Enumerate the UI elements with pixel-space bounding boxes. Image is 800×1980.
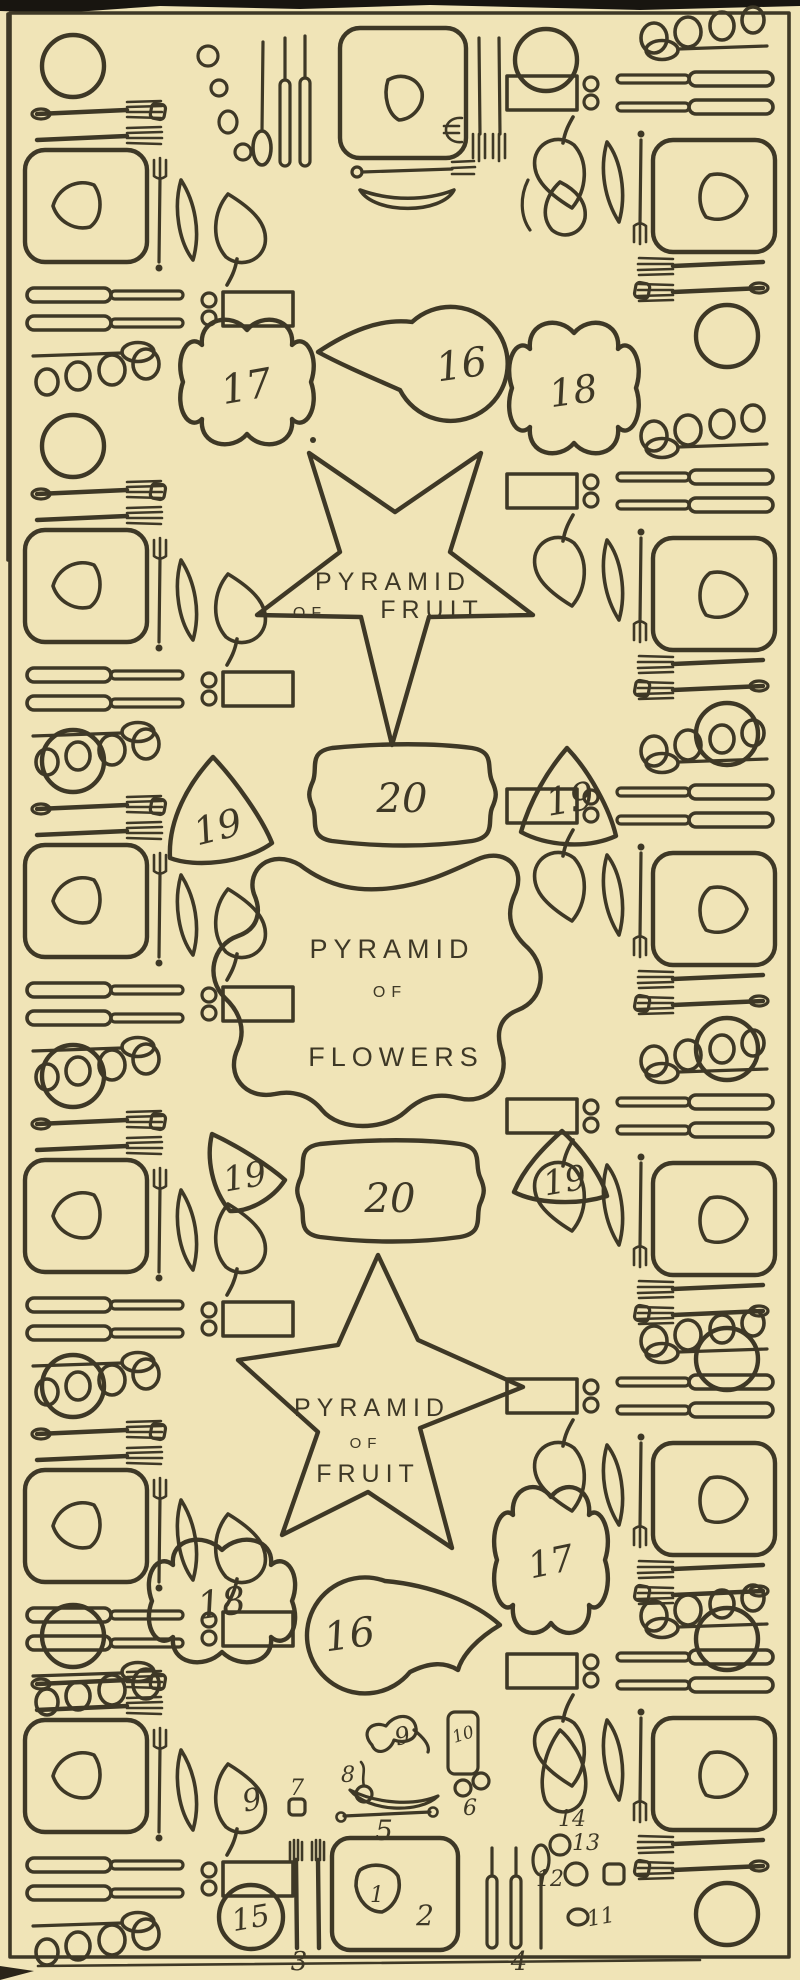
ink-dot <box>310 437 316 443</box>
centerpiece-label: PYRAMID <box>294 1394 450 1422</box>
marker-19: 19 <box>542 773 597 825</box>
scanned-book-figure: 17 16 18 PYRAMID OF FRUIT 19 20 19 PYRAM… <box>0 0 800 1980</box>
legend-number-7: 7 <box>290 1776 304 1801</box>
table-plan-diagram: 17 16 18 PYRAMID OF FRUIT 19 20 19 PYRAM… <box>0 0 800 1980</box>
centerpiece-label: FRUIT <box>380 596 484 624</box>
marker-20: 20 <box>364 1176 416 1222</box>
legend-number-5: 5 <box>375 1814 393 1847</box>
marker-18: 18 <box>546 366 600 416</box>
legend-number-13: 13 <box>572 1831 600 1856</box>
legend-number-6: 6 <box>463 1796 477 1821</box>
centerpiece-label: OF <box>373 984 407 1001</box>
centerpiece-label: FLOWERS <box>308 1042 484 1072</box>
legend-number-11: 11 <box>585 1903 617 1932</box>
legend-number-14: 14 <box>558 1807 586 1832</box>
marker-17: 17 <box>217 360 276 414</box>
centerpiece-label: PYRAMID <box>315 568 471 596</box>
legend-number-1: 1 <box>370 1883 384 1908</box>
marker-16: 16 <box>321 1609 378 1662</box>
legend-number-8: 8 <box>341 1763 355 1788</box>
centerpiece-label: OF <box>293 605 327 622</box>
legend-number-15: 15 <box>229 1898 273 1939</box>
legend-number-2: 2 <box>415 1899 434 1932</box>
centerpiece-label: FRUIT <box>316 1460 420 1488</box>
marker-16: 16 <box>433 339 490 392</box>
marker-18: 18 <box>195 1578 249 1628</box>
marker-19: 19 <box>540 1158 590 1205</box>
marker-19: 19 <box>220 1154 270 1201</box>
centerpiece-label: OF <box>350 1435 383 1452</box>
legend-number-3: 3 <box>291 1947 308 1977</box>
marker-20: 20 <box>376 776 428 822</box>
centerpiece-label: PYRAMID <box>309 934 474 964</box>
legend-number-4: 4 <box>510 1947 528 1977</box>
spoon-handle <box>262 42 263 131</box>
